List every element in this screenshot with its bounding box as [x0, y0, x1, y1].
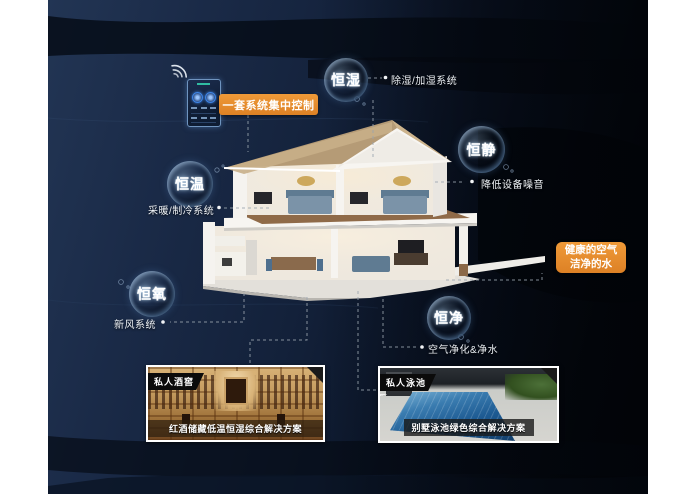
note-oxygen-system: 新风系统 [114, 316, 156, 331]
wine-cellar-photo-card: 私人酒窖 红酒储藏低温恒湿综合解决方案 [146, 365, 325, 442]
infographic-canvas: 一套系统集中控制 恒湿 恒静 恒温 恒氧 恒净 除湿/加湿系统 降低设备噪音 采… [0, 0, 700, 497]
note-humidity-system: 除湿/加湿系统 [391, 72, 457, 87]
connector-wine-photo [250, 297, 307, 366]
bubble-constant-temperature: 恒温 [167, 161, 213, 207]
panel-divider2 [191, 122, 216, 123]
central-control-badge: 一套系统集中控制 [219, 94, 318, 115]
connector-oxygen [170, 293, 244, 322]
panel-dial-left [192, 92, 203, 103]
wine-cellar-photo: 私人酒窖 红酒储藏低温恒湿综合解决方案 [148, 367, 323, 440]
panel-divider [191, 113, 216, 114]
central-control-label: 一套系统集中控制 [223, 97, 315, 113]
pool-photo-caption: 别墅泳池绿色综合解决方案 [403, 419, 533, 436]
panel-dial-right [205, 92, 216, 103]
connector-highlight-box [446, 273, 542, 280]
wine-photo-tag: 私人酒窖 [148, 373, 204, 390]
bubble-label: 恒净 [434, 308, 464, 328]
bubble-constant-clean: 恒净 [427, 296, 471, 340]
highlight-line2: 洁净的水 [556, 257, 626, 271]
note-clean-system: 空气净化&净水 [428, 341, 498, 356]
bubble-constant-quiet: 恒静 [458, 126, 505, 173]
bubble-label: 恒湿 [331, 70, 361, 90]
highlight-line1: 健康的空气 [556, 243, 626, 257]
wine-display-cabinet [224, 377, 248, 405]
panel-buttons [191, 117, 216, 119]
pool-photo-card: 私人泳池 别墅泳池绿色综合解决方案 [378, 366, 559, 443]
panel-readouts [191, 107, 216, 109]
pool-photo: 私人泳池 别墅泳池绿色综合解决方案 [380, 368, 557, 441]
connector-pool-photo [358, 291, 377, 390]
panel-title-bar [197, 83, 210, 85]
bubble-label: 恒静 [467, 140, 497, 160]
bubble-label: 恒氧 [137, 284, 167, 304]
bubble-constant-humidity: 恒湿 [324, 58, 368, 102]
control-panel-device [187, 79, 221, 127]
pool-photo-tag: 私人泳池 [380, 374, 436, 391]
bubble-constant-oxygen: 恒氧 [129, 271, 175, 317]
wine-photo-caption: 红酒储藏低温恒湿综合解决方案 [148, 420, 323, 437]
corner-fold-icon [541, 368, 557, 384]
connector-clean [383, 299, 417, 347]
note-quiet-system: 降低设备噪音 [481, 176, 544, 191]
bubble-label: 恒温 [175, 174, 205, 194]
healthy-air-water-box: 健康的空气 洁净的水 [556, 242, 626, 273]
note-temperature-system: 采暖/制冷系统 [148, 202, 214, 217]
scene-panel: 一套系统集中控制 恒湿 恒静 恒温 恒氧 恒净 除湿/加湿系统 降低设备噪音 采… [48, 0, 648, 494]
corner-fold-icon [307, 367, 323, 383]
